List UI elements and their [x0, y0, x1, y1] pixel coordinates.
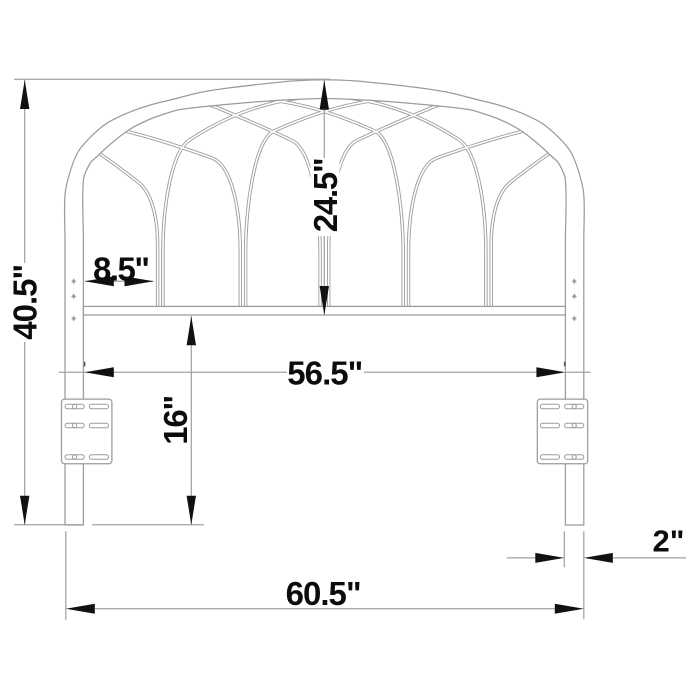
- svg-text:16": 16": [157, 395, 194, 445]
- svg-text:2": 2": [653, 524, 685, 559]
- svg-text:40.5": 40.5": [7, 264, 44, 340]
- svg-text:24.5": 24.5": [307, 157, 344, 232]
- svg-text:60.5": 60.5": [286, 575, 362, 612]
- svg-text:8.5": 8.5": [93, 250, 150, 287]
- svg-text:56.5": 56.5": [287, 355, 363, 392]
